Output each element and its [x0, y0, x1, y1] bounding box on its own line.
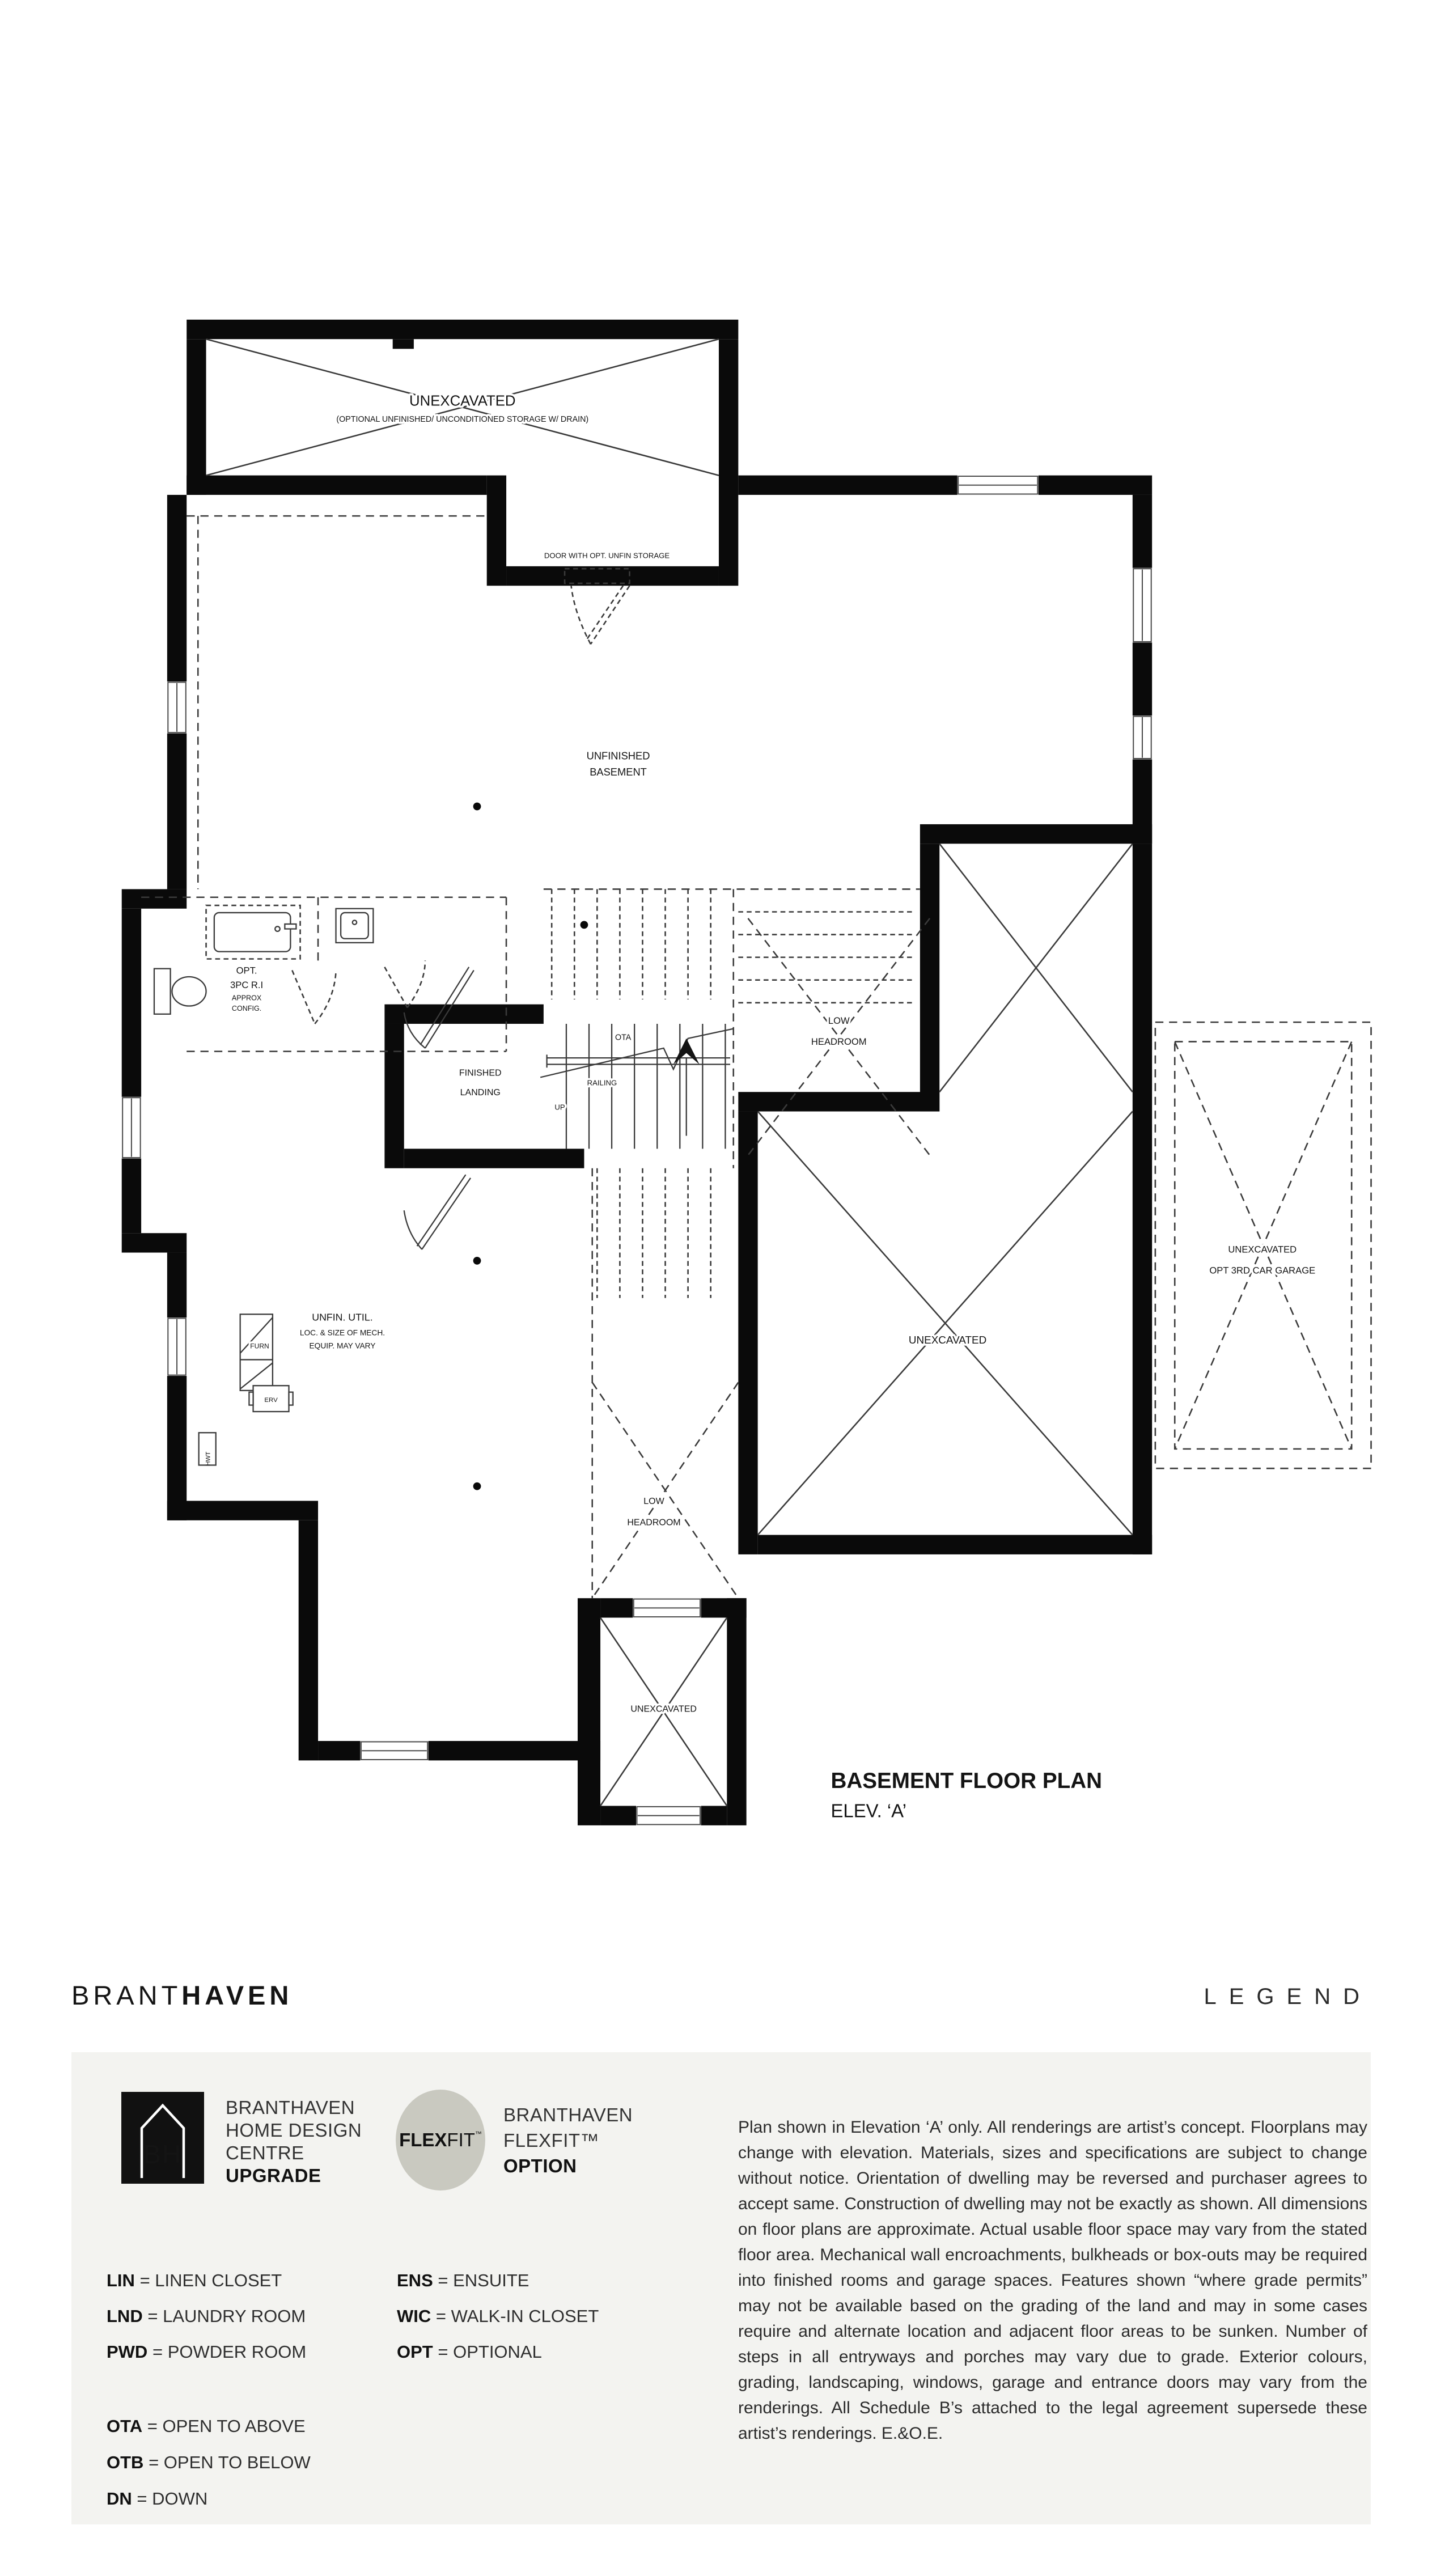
abbr-row-pwd: PWD = POWDER ROOM: [107, 2342, 306, 2362]
abbr: WIC: [397, 2306, 431, 2326]
label-low-headroom2-2: HEADROOM: [627, 1517, 680, 1527]
abbr-row-ens: ENS = ENSUITE: [397, 2270, 529, 2291]
brand-light: BRANT: [71, 1980, 181, 2010]
upgrade-text: BRANTHAVEN HOME DESIGN CENTRE UPGRADE: [226, 2096, 362, 2187]
label-door-note: DOOR WITH OPT. UNFIN STORAGE: [544, 552, 670, 560]
abbr-meaning: POWDER ROOM: [168, 2342, 307, 2362]
branthaven-logo: BRANTHAVEN: [71, 1980, 293, 2011]
bh-home-design-logo: BH: [121, 2092, 204, 2184]
flexfit-badge-tm: ™: [475, 2130, 482, 2138]
furnace-icon: [240, 1314, 273, 1391]
abbr-separator: =: [140, 2270, 150, 2290]
page: { "plan": { "title": "BASEMENT FLOOR PLA…: [0, 0, 1449, 2576]
label-unexcavated-small: UNEXCAVATED: [630, 1704, 697, 1714]
label-furn: FURN: [250, 1342, 269, 1350]
abbr: OTB: [107, 2452, 143, 2472]
label-low-headroom2-1: LOW: [643, 1496, 664, 1506]
abbr-row-dn: DN = DOWN: [107, 2489, 207, 2509]
floor-plan: UNEXCAVATED (OPTIONAL UNFINISHED/ UNCOND…: [0, 0, 1449, 1871]
abbr-meaning: DOWN: [152, 2489, 207, 2509]
abbr-separator: =: [149, 2452, 159, 2472]
label-garage-2: OPT 3RD CAR GARAGE: [1209, 1265, 1315, 1276]
abbr-meaning: OPEN TO ABOVE: [163, 2416, 306, 2436]
abbr-separator: =: [438, 2270, 448, 2290]
abbr: ENS: [397, 2270, 433, 2290]
label-storage-unexcavated: UNEXCAVATED: [409, 393, 515, 409]
label-hwt: HWT: [205, 1451, 212, 1465]
abbr-meaning: LINEN CLOSET: [155, 2270, 282, 2290]
label-unfinished-2: BASEMENT: [590, 766, 647, 778]
flexfit-badge-icon: FLEXFIT™: [396, 2090, 485, 2191]
label-low-headroom-2: HEADROOM: [811, 1036, 867, 1047]
label-landing-1: FINISHED: [459, 1068, 502, 1078]
legend-box: BH BRANTHAVEN HOME DESIGN CENTRE UPGRADE…: [71, 2052, 1371, 2524]
disclaimer-text: Plan shown in Elevation ‘A’ only. All re…: [738, 2115, 1367, 2446]
toilet-bowl-icon: [172, 977, 206, 1006]
label-landing-2: LANDING: [460, 1087, 501, 1098]
abbr-meaning: LAUNDRY ROOM: [163, 2306, 306, 2326]
flexfit-badge-light: FIT: [447, 2129, 474, 2150]
abbr-meaning: ENSUITE: [453, 2270, 529, 2290]
label-util-3: EQUIP. MAY VARY: [310, 1341, 376, 1350]
toilet-tank-icon: [154, 969, 171, 1014]
abbr-row-ota: OTA = OPEN TO ABOVE: [107, 2416, 306, 2437]
label-opt-bath-1: OPT.: [236, 965, 257, 976]
plan-subtitle: ELEV. ‘A’: [831, 1800, 906, 1821]
bh-logo-text: BH: [143, 2139, 182, 2169]
abbr-separator: =: [147, 2416, 158, 2436]
label-unexcavated-main: UNEXCAVATED: [909, 1334, 986, 1346]
label-low-headroom-1: LOW: [828, 1015, 850, 1026]
label-storage-note: (OPTIONAL UNFINISHED/ UNCONDITIONED STOR…: [336, 415, 588, 424]
upgrade-line1: BRANTHAVEN: [226, 2096, 362, 2119]
label-util-1: UNFIN. UTIL.: [312, 1312, 372, 1323]
label-ota: OTA: [615, 1033, 632, 1043]
label-opt-bath-3: APPROX: [232, 994, 262, 1002]
abbr-meaning: OPTIONAL: [453, 2342, 542, 2362]
plan-title: BASEMENT FLOOR PLAN: [831, 1769, 1102, 1793]
flexfit-line2: FLEXFIT™: [503, 2128, 633, 2153]
support-column: [473, 803, 481, 811]
abbr-separator: =: [137, 2489, 147, 2509]
abbr-row-otb: OTB = OPEN TO BELOW: [107, 2452, 311, 2473]
stairs: [540, 1024, 734, 1149]
label-unfinished-1: UNFINISHED: [587, 749, 650, 761]
upgrade-line3: CENTRE: [226, 2142, 362, 2164]
label-erv: ERV: [264, 1397, 278, 1404]
abbr-row-wic: WIC = WALK-IN CLOSET: [397, 2306, 599, 2327]
abbr-separator: =: [147, 2306, 158, 2326]
abbr-row-lin: LIN = LINEN CLOSET: [107, 2270, 282, 2291]
label-util-2: LOC. & SIZE OF MECH.: [300, 1329, 385, 1337]
abbr-separator: =: [436, 2306, 446, 2326]
label-opt-bath-4: CONFIG.: [232, 1005, 261, 1012]
plan-windows: [122, 476, 1151, 1824]
tub-icon: [214, 913, 291, 952]
abbr-separator: =: [438, 2342, 448, 2362]
brand-bold: HAVEN: [181, 1980, 293, 2010]
faucet-icon: [285, 924, 296, 929]
label-up: UP: [554, 1103, 565, 1112]
abbr-row-lnd: LND = LAUNDRY ROOM: [107, 2306, 306, 2327]
upgrade-line4: UPGRADE: [226, 2164, 362, 2187]
abbr: LIN: [107, 2270, 135, 2290]
abbr: OPT: [397, 2342, 433, 2362]
house-icon: BH: [121, 2092, 204, 2184]
legend-title: LEGEND: [1204, 1984, 1372, 2010]
abbr: LND: [107, 2306, 143, 2326]
label-garage-1: UNEXCAVATED: [1228, 1244, 1297, 1255]
abbr-meaning: WALK-IN CLOSET: [451, 2306, 599, 2326]
abbr: DN: [107, 2489, 132, 2509]
support-column: [581, 921, 588, 929]
upgrade-line2: HOME DESIGN: [226, 2119, 362, 2142]
abbr: OTA: [107, 2416, 142, 2436]
flexfit-badge-bold: FLEX: [399, 2129, 447, 2150]
label-opt-bath-2: 3PC R.I: [230, 980, 263, 990]
abbr-row-opt: OPT = OPTIONAL: [397, 2342, 542, 2362]
abbr-meaning: OPEN TO BELOW: [164, 2452, 311, 2472]
bath-fixtures: [154, 905, 373, 1014]
flexfit-line1: BRANTHAVEN: [503, 2102, 633, 2128]
up-arrow-icon: [673, 1039, 700, 1136]
support-column: [473, 1482, 481, 1490]
abbr-separator: =: [152, 2342, 163, 2362]
flexfit-line3: OPTION: [503, 2153, 633, 2179]
flexfit-text: BRANTHAVEN FLEXFIT™ OPTION: [503, 2102, 633, 2179]
support-column: [473, 1257, 481, 1265]
abbr: PWD: [107, 2342, 147, 2362]
label-railing: RAILING: [587, 1079, 617, 1087]
